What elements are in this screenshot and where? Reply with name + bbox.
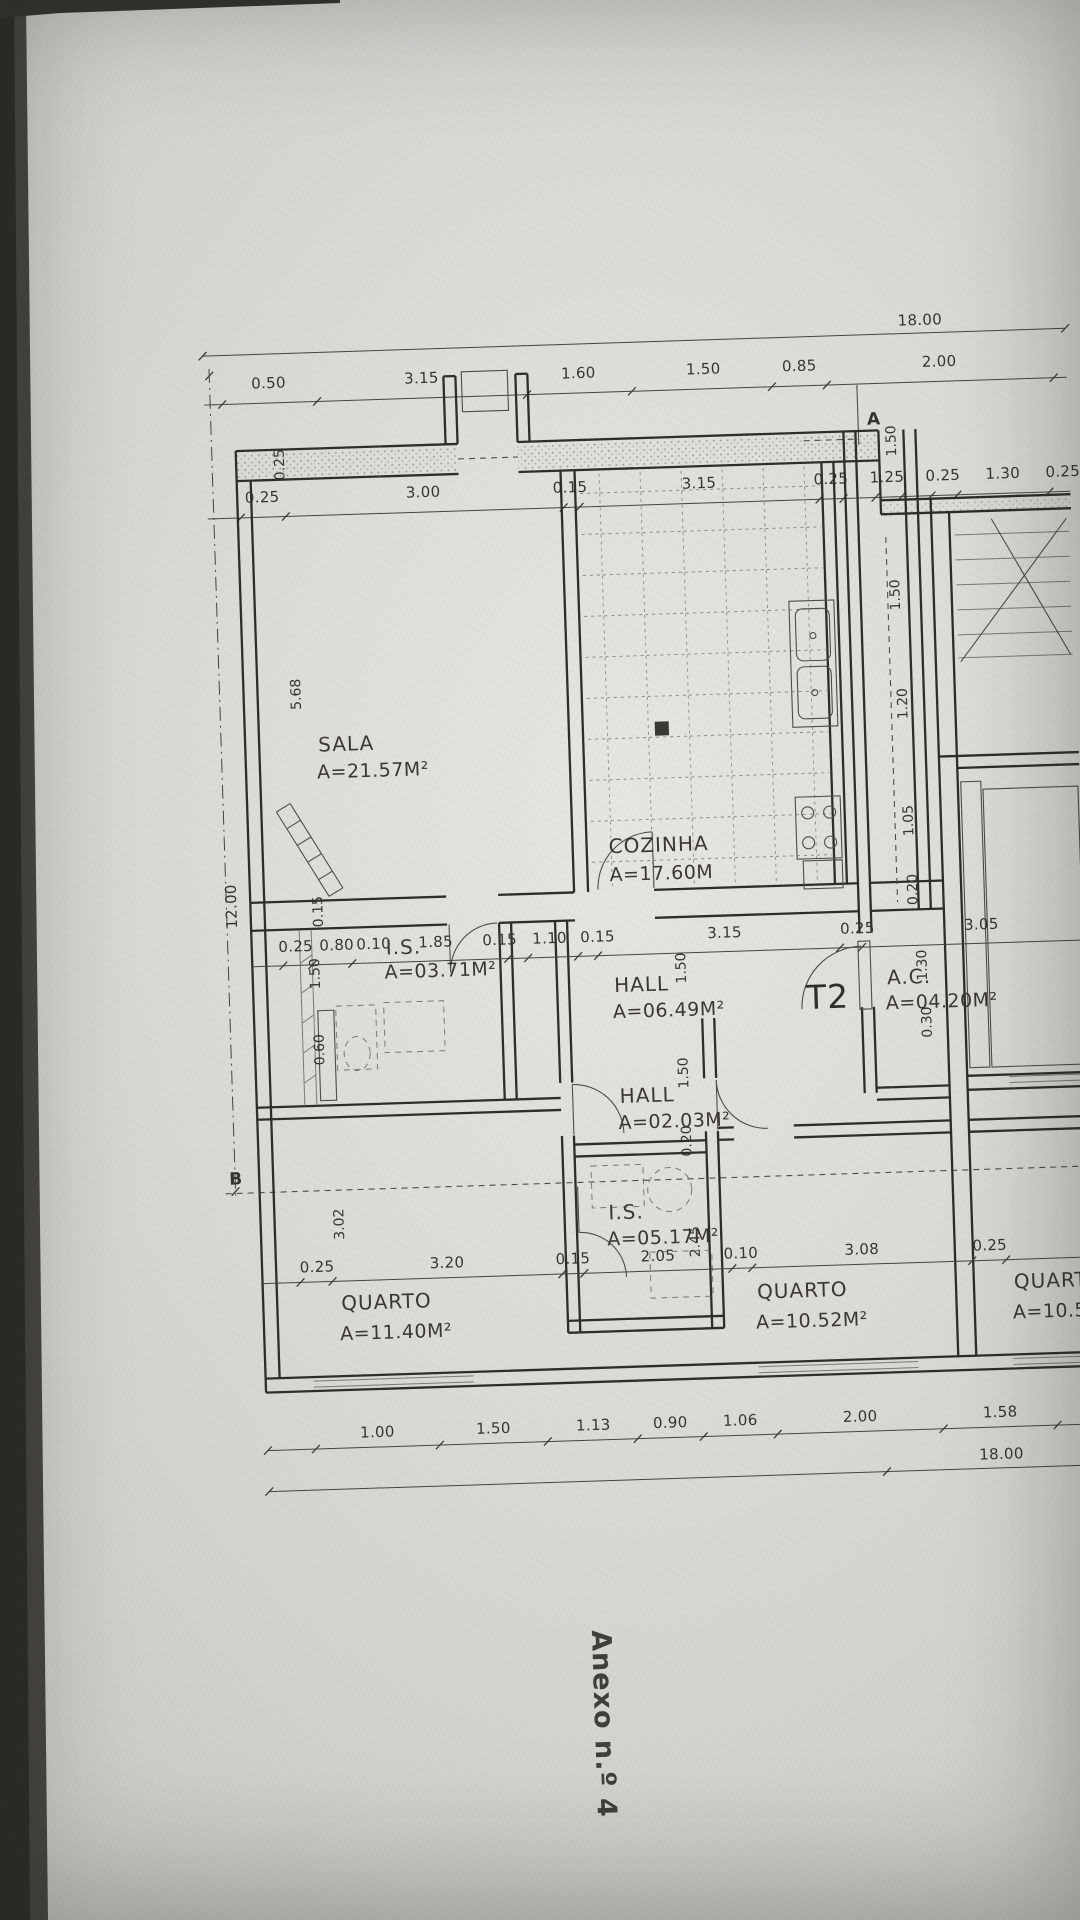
dim-label: 1.60 [561, 363, 596, 382]
dim-label: 0.10 [723, 1244, 758, 1263]
dim-label: 1.05 [900, 805, 917, 837]
dim-label: 1.10 [532, 929, 567, 948]
dim-label: 2.00 [843, 1407, 878, 1426]
dim-entry: 1.50 [883, 425, 900, 457]
dim-label: 1.58 [983, 1402, 1018, 1421]
room-area-sala: A=21.57M² [317, 758, 429, 784]
room-label-is1: I.S. [385, 934, 421, 959]
dim-label: 1.50 [476, 1419, 511, 1438]
plan-rotated-group: 18.00 0.50 3.15 1.60 1.50 0.85 2.00 0.25… [198, 305, 1080, 1829]
dim-left-total: 12.00 [222, 884, 241, 929]
dim-label: 0.25 [278, 937, 313, 956]
room-label-quarto1: QUARTO [341, 1288, 432, 1315]
dim-label: 1.50 [887, 579, 904, 611]
dim-label: 3.20 [429, 1253, 464, 1272]
dim-label: 3.02 [331, 1208, 348, 1240]
room-label-quarto2: QUARTO [757, 1277, 848, 1304]
apartment-type-label: T2 [804, 977, 849, 1017]
dim-label: 0.20 [905, 874, 922, 906]
annex-title: Anexo n.º 4 [585, 1630, 622, 1819]
room-area-hall2: A=02.03M² [618, 1109, 730, 1135]
dim-label: 1.13 [576, 1416, 611, 1435]
dim-label: 1.50 [307, 958, 324, 990]
dim-label: 3.15 [707, 923, 742, 942]
dim-label: 0.85 [782, 356, 817, 375]
room-area-quarto3: A=10.52M² [1013, 1298, 1080, 1324]
dim-label: 0.25 [972, 1236, 1007, 1255]
dim-label: 1.06 [723, 1411, 758, 1430]
dim-label: 5.68 [288, 678, 305, 710]
dim-label: 0.60 [312, 1034, 329, 1066]
dim-label: 0.90 [653, 1413, 688, 1432]
dim-label: 0.30 [919, 1006, 936, 1038]
dim-top-total: 18.00 [897, 310, 942, 329]
dim-label: 0.15 [555, 1249, 590, 1268]
photographed-floor-plan-page: 18.00 0.50 3.15 1.60 1.50 0.85 2.00 0.25… [0, 0, 1080, 1920]
dim-label: 1.20 [895, 688, 912, 720]
dimension-left-total: 12.00 [205, 368, 250, 1198]
dim-label: 2.45 [687, 1226, 704, 1258]
dimension-row-mid: 0.25 0.80 0.10 1.85 0.15 1.10 0.15 3.15 … [251, 912, 1080, 971]
dim-label: 0.15 [580, 927, 615, 946]
dim-label: 1.30 [985, 464, 1020, 483]
kitchen-fittings [577, 466, 843, 896]
dimension-row-total-bottom: 18.00 [265, 1442, 1080, 1496]
dim-label: 0.25 [1045, 462, 1080, 481]
room-area-quarto2: A=10.52M² [756, 1308, 868, 1334]
dimension-row-bottom: 1.00 1.50 1.13 0.90 1.06 2.00 1.58 [263, 1400, 1080, 1455]
dim-label: 0.25 [925, 466, 960, 485]
room-area-hall1: A=06.49M² [613, 998, 725, 1024]
dim-label: 0.25 [272, 449, 289, 481]
dim-bottom-total: 18.00 [979, 1444, 1024, 1463]
dim-label: 1.25 [869, 468, 904, 487]
section-marker-b: B [229, 1169, 243, 1189]
room-label-quarto3: QUARTO [1014, 1267, 1080, 1294]
dim-label: 0.80 [319, 936, 354, 955]
dimension-row-2: 0.50 3.15 1.60 1.50 0.85 2.00 [203, 348, 1067, 409]
room-area-cozinha: A=17.60M [609, 861, 713, 886]
dim-label: 1.85 [418, 932, 453, 951]
dim-label: 0.15 [310, 896, 327, 928]
room-label-hall1: HALL [614, 971, 670, 997]
dim-label: 1.50 [675, 1057, 692, 1089]
dim-label: 3.15 [404, 369, 439, 388]
structural-column [655, 721, 669, 735]
room-label-sala: SALA [318, 731, 375, 757]
dim-label: 1.50 [673, 952, 690, 984]
dim-label: 1.50 [686, 359, 721, 378]
dim-label: 0.25 [299, 1257, 334, 1276]
dim-label: 0.25 [840, 919, 875, 938]
room-area-is1: A=03.71M² [384, 958, 496, 984]
dim-label: 1.30 [914, 949, 931, 981]
section-marker-a: A [867, 409, 882, 429]
room-label-hall2: HALL [619, 1082, 675, 1108]
dim-label: 2.00 [922, 352, 957, 371]
room-area-ac: A=04.20M² [885, 989, 997, 1015]
floor-plan-drawing: 18.00 0.50 3.15 1.60 1.50 0.85 2.00 0.25… [0, 0, 1080, 1920]
dim-label: 0.20 [679, 1125, 696, 1157]
dark-top-edge [0, 0, 340, 18]
sala-corner-detail [276, 802, 343, 898]
kitchen-tile-grid [577, 466, 833, 890]
dim-label: 0.15 [482, 930, 517, 949]
window-symbols [314, 1356, 1080, 1387]
dim-label: 3.00 [406, 483, 441, 502]
dim-label: 1.00 [360, 1422, 395, 1441]
room-area-quarto1: A=11.40M² [340, 1320, 452, 1346]
photo-edges [0, 0, 340, 1920]
room-label-is2: I.S. [608, 1199, 644, 1224]
room-label-cozinha: COZINHA [608, 831, 709, 858]
dim-label: 3.08 [844, 1240, 879, 1259]
dim-label: 3.05 [964, 915, 999, 934]
dim-label: 0.50 [251, 373, 286, 392]
